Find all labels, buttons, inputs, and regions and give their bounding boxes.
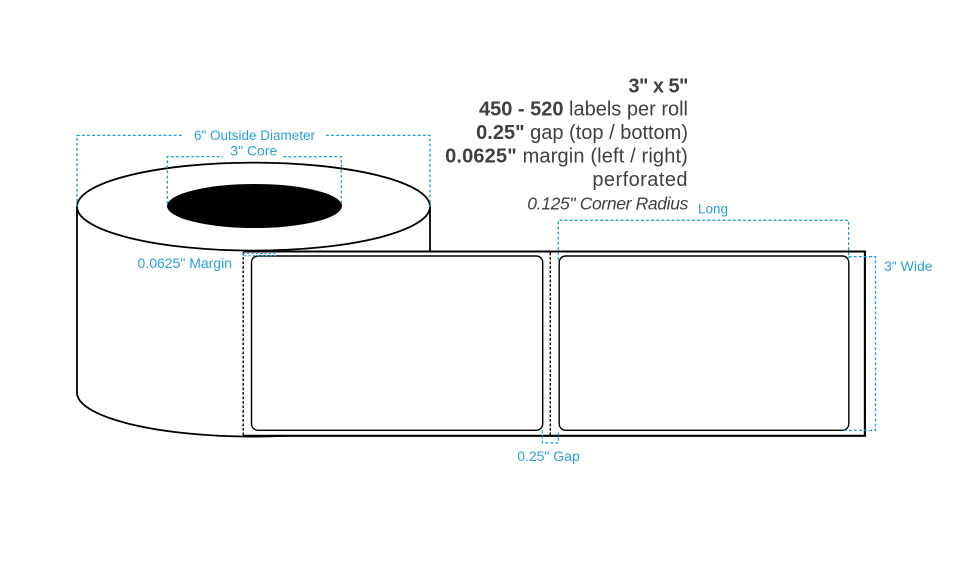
svg-text:3" Wide: 3" Wide (884, 258, 933, 274)
svg-text:0.125" Corner Radius: 0.125" Corner Radius (527, 193, 688, 213)
svg-text:0.0625" Margin: 0.0625" Margin (138, 255, 232, 271)
svg-text:450 - 520 labels per roll: 450 - 520 labels per roll (479, 99, 688, 121)
svg-text:Long: Long (698, 202, 728, 217)
svg-text:6" Outside Diameter: 6" Outside Diameter (194, 128, 316, 143)
svg-text:perforated: perforated (592, 169, 688, 191)
svg-text:0.25" Gap: 0.25" Gap (517, 448, 580, 464)
svg-text:0.0625" margin (left / right): 0.0625" margin (left / right) (445, 146, 688, 168)
svg-text:3" Core: 3" Core (230, 142, 277, 158)
svg-text:0.25" gap (top / bottom): 0.25" gap (top / bottom) (476, 122, 688, 144)
svg-text:3" x 5": 3" x 5" (628, 75, 688, 97)
